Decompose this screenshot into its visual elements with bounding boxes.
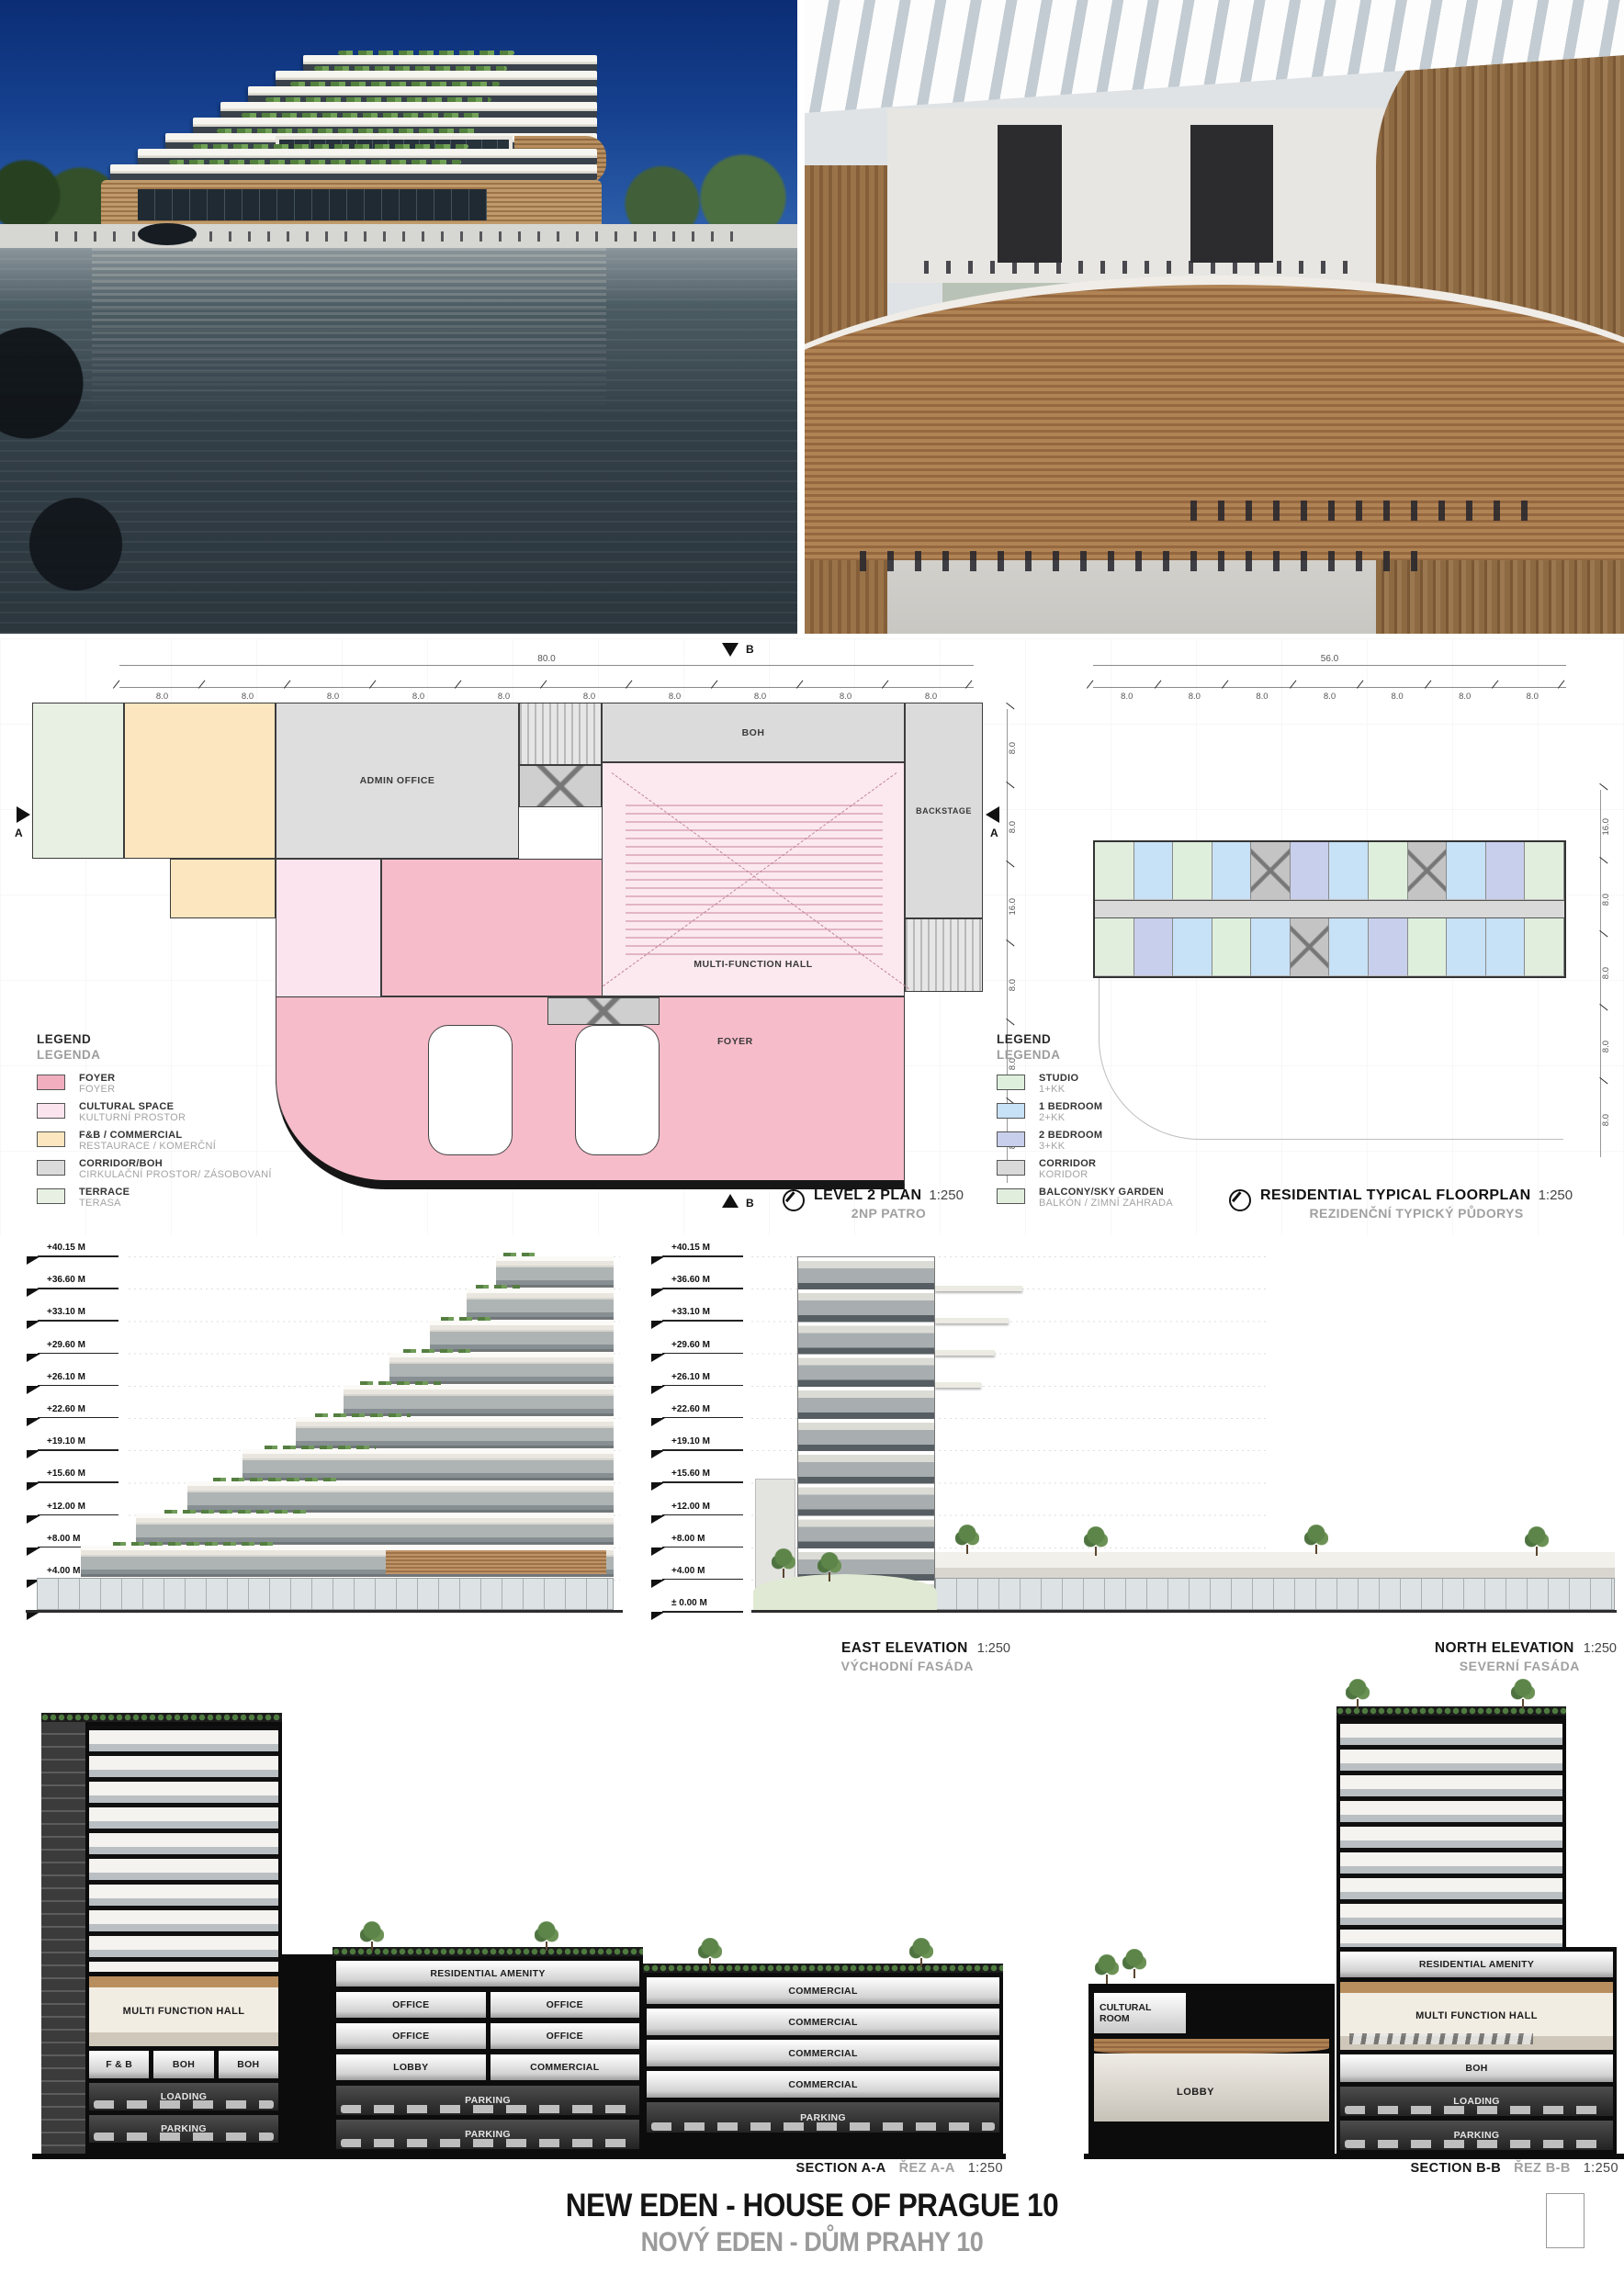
level-marker: +22.60 M [648, 1403, 758, 1435]
level2-legend: LEGEND LEGENDA FOYER FOYER CULTURAL SPAC… [37, 1032, 312, 1215]
foyer-core [428, 1025, 513, 1155]
elevation-scale: 1:250 [1584, 1641, 1617, 1656]
legend-title-cz: LEGENDA [37, 1048, 312, 1064]
dim-segment: 8.0 [1093, 688, 1161, 704]
section-room-cell: COMMERCIAL [647, 2009, 999, 2035]
section-marker-b-top [722, 643, 739, 657]
level-marker: +36.60 M [648, 1274, 758, 1306]
dim-value: 16.0 [1601, 818, 1611, 836]
legend-label-en: 1 BEDROOM [1039, 1101, 1272, 1112]
section-room-cell: RESIDENTIAL AMENITY [336, 1961, 639, 1986]
section-title-en: SECTION A-A [796, 2161, 886, 2176]
section-marker-letter: A [15, 827, 23, 839]
unit-cell [1134, 842, 1174, 900]
legend-item: TERRACE TERASA [37, 1187, 312, 1209]
section-a-core [282, 1954, 333, 2154]
dim-segment: 8.0 [1008, 709, 1018, 788]
section-room-cell: BOH [1340, 2054, 1613, 2082]
section-ground-bar [32, 2154, 1006, 2159]
level-marker: +29.60 M [23, 1339, 133, 1371]
board-title: NEW EDEN - HOUSE OF PRAGUE 10 NOVÝ EDEN … [0, 2188, 1624, 2258]
admin-office-room: ADMIN OFFICE [276, 703, 519, 859]
dim-segment: 8.0 [1498, 688, 1566, 704]
section-marker-a-right [986, 806, 999, 823]
legend-item: CULTURAL SPACE KULTURNÍ PROSTOR [37, 1101, 312, 1123]
section-marker-letter: B [746, 643, 754, 656]
section-room-cell: LOBBY [336, 2054, 486, 2080]
dim-value: 8.0 [1601, 967, 1611, 979]
section-room-label: LOBBY [1177, 2087, 1214, 2098]
atrium-people [860, 551, 1429, 571]
dim-side-column: 16.08.08.08.08.0 [1600, 790, 1611, 1157]
level-marker: +29.60 M [648, 1339, 758, 1371]
unit-cell [1369, 918, 1408, 976]
legend-swatch [37, 1160, 65, 1176]
multi-function-hall: MULTI-FUNCTION HALL [602, 762, 905, 996]
unit-cell [1212, 918, 1252, 976]
legend-title: LEGEND LEGENDA [997, 1032, 1272, 1064]
section-room-cell: F & B [89, 2051, 149, 2078]
atrium-people [1190, 501, 1539, 521]
residential-floors [89, 1726, 278, 1972]
level-value: +36.60 M [671, 1275, 710, 1285]
section-marker-letter: B [746, 1197, 754, 1210]
foreground-furniture [0, 276, 138, 634]
tree [1095, 1954, 1119, 1984]
section-scale: 1:250 [968, 2161, 1003, 2176]
room-label: MULTI-FUNCTION HALL [694, 959, 812, 970]
legend-label-cz: 2+KK [1039, 1112, 1272, 1123]
board-title-en: NEW EDEN - HOUSE OF PRAGUE 10 [81, 2188, 1542, 2224]
level-value: +26.10 M [671, 1372, 710, 1382]
legend-swatch [37, 1103, 65, 1119]
dim-value: 8.0 [1008, 979, 1018, 991]
hall-seating [626, 805, 883, 961]
dim-segment: 8.0 [1008, 946, 1018, 1025]
legend-label-cz: KORIDOR [1039, 1169, 1272, 1180]
level-marker: +19.10 M [648, 1435, 758, 1468]
plan-title-cz: 2NP PATRO [814, 1206, 964, 1221]
east-elevation-title: EAST ELEVATION1:250 VÝCHODNÍ FASÁDA [735, 1640, 1010, 1673]
elevation-slab [296, 1417, 614, 1447]
legend-swatch [997, 1160, 1025, 1176]
level-marker: +19.10 M [23, 1435, 133, 1468]
tree [1122, 1949, 1146, 1978]
level-value: +29.60 M [671, 1340, 710, 1350]
room-label: BOH [742, 727, 765, 738]
section-row: PARKING [647, 2102, 999, 2133]
foyer-room: FOYER [276, 996, 905, 1189]
level-value: +15.60 M [47, 1469, 85, 1479]
level-value: +40.15 M [47, 1243, 85, 1253]
roof-tree [1511, 1679, 1535, 1708]
elevator-core [547, 997, 660, 1025]
dim-value: 16.0 [1008, 898, 1018, 916]
north-arrow-icon [1229, 1189, 1251, 1211]
level-value: ± 0.00 M [671, 1598, 707, 1608]
section-row: PARKING [1340, 2121, 1613, 2150]
multi-function-hall-cell: MULTI FUNCTION HALL [89, 1976, 278, 2046]
level-marker: +8.00 M [648, 1533, 758, 1565]
section-row: OFFICEOFFICE [336, 1992, 639, 2018]
level-value: +26.10 M [47, 1372, 85, 1382]
gallery-art-wall [998, 125, 1062, 263]
level-marker: +4.00 M [648, 1565, 758, 1597]
wood-ceiling [1094, 2039, 1329, 2054]
unit-cell [1329, 918, 1369, 976]
fb-room [124, 703, 276, 859]
unit-cell [1329, 842, 1369, 900]
legend-swatch [37, 1075, 65, 1090]
legend-item: 1 BEDROOM 2+KK [997, 1101, 1272, 1123]
cantilever-slab [935, 1286, 1022, 1291]
landscape-berm [753, 1574, 937, 1610]
section-room-label: MULTI FUNCTION HALL [1415, 2010, 1538, 2021]
section-row: PARKING [336, 2120, 639, 2149]
plan-scale: 1:250 [929, 1187, 964, 1203]
north-level-markers: +40.15 M+36.60 M+33.10 M+29.60 M+26.10 M… [648, 1242, 758, 1629]
legend-label-en: 2 BEDROOM [1039, 1130, 1272, 1141]
legend-swatch [997, 1075, 1025, 1090]
section-b-right: RESIDENTIAL AMENITY MULTI FUNCTION HALL … [1336, 1947, 1617, 2154]
dim-total-80: 80.0 [119, 654, 974, 666]
section-room-label: MULTI FUNCTION HALL [123, 2006, 245, 2017]
level-value: +15.60 M [671, 1469, 710, 1479]
level-value: +40.15 M [671, 1243, 710, 1253]
roof-tree [360, 1921, 384, 1951]
level-value: +12.00 M [47, 1502, 85, 1512]
presentation-board: 80.0 8.08.08.08.08.08.08.08.08.08.0 8.08… [0, 0, 1624, 2296]
unit-cell [1251, 842, 1291, 900]
section-room-cell: OFFICE [491, 2023, 640, 2049]
dim-segment: 8.0 [1601, 1084, 1611, 1157]
elevation-slab [136, 1514, 614, 1544]
dim-segment: 8.0 [1228, 688, 1296, 704]
unit-cell [1212, 842, 1252, 900]
legend-title-en: LEGEND [37, 1032, 312, 1048]
section-row: BOH [1340, 2054, 1613, 2082]
legend-swatch [997, 1131, 1025, 1147]
section-title-cz: ŘEZ B-B [1514, 2161, 1571, 2176]
level-value: +19.10 M [671, 1436, 710, 1446]
legend-title-en: LEGEND [997, 1032, 1272, 1048]
section-row: PARKING [89, 2115, 278, 2143]
level-marker: +15.60 M [23, 1468, 133, 1500]
legend-label-cz: KULTURNÍ PROSTOR [79, 1112, 312, 1123]
dim-segment: 8.0 [1296, 688, 1364, 704]
section-b-left: CULTURAL ROOM LOBBY [1088, 1984, 1335, 2154]
legend-item: 2 BEDROOM 3+KK [997, 1130, 1272, 1152]
elevation-slab [430, 1321, 614, 1351]
dim-value: 8.0 [1008, 821, 1018, 833]
unit-cell [1291, 842, 1330, 900]
section-a-tower: MULTI FUNCTION HALL F & BBOHBOH LOADING … [41, 1722, 282, 2154]
section-room-cell: COMMERCIAL [647, 1977, 999, 2004]
legend-label-en: CULTURAL SPACE [79, 1101, 312, 1112]
cantilever-slab [935, 1318, 1009, 1323]
legend-label-cz: 3+KK [1039, 1141, 1272, 1152]
section-room-cell: RESIDENTIAL AMENITY [1340, 1952, 1613, 1977]
section-room-cell: PARKING [336, 2086, 639, 2115]
corridor-band [1095, 900, 1564, 918]
section-row: RESIDENTIAL AMENITY [336, 1961, 639, 1986]
section-marker-b-bottom [722, 1194, 739, 1208]
foyer-arm [381, 859, 602, 996]
level-value: +8.00 M [47, 1534, 80, 1544]
level-marker: +26.10 M [648, 1371, 758, 1403]
exterior-rendering-photo [0, 0, 797, 634]
residential-floors [1340, 1719, 1562, 1947]
level2-plan-title: LEVEL 2 PLAN1:250 2NP PATRO [783, 1187, 964, 1221]
plan-title-en: LEVEL 2 PLAN [814, 1187, 921, 1203]
cantilever-slab [935, 1382, 981, 1388]
section-row: COMMERCIAL [647, 2071, 999, 2098]
section-room-cell: LOADING [89, 2083, 278, 2110]
section-room-cell: COMMERCIAL [491, 2054, 640, 2080]
section-row: LOADING [89, 2083, 278, 2110]
roof-tree [535, 1921, 558, 1951]
north-elevation-title: NORTH ELEVATION1:250 SEVERNÍ FASÁDA [1341, 1640, 1617, 1673]
section-row: COMMERCIAL [647, 2009, 999, 2035]
room-label: ADMIN OFFICE [360, 775, 435, 786]
unit-cell [1408, 842, 1448, 900]
section-row: LOADING [1340, 2087, 1613, 2116]
cantilever-slab [935, 1350, 995, 1356]
unit-cell [1095, 918, 1134, 976]
roof-tree [698, 1938, 722, 1967]
unit-cell [1486, 918, 1526, 976]
section-row: OFFICEOFFICE [336, 2023, 639, 2049]
legend-label-en: F&B / COMMERCIAL [79, 1130, 312, 1141]
legend-label-cz: 1+KK [1039, 1084, 1272, 1095]
section-row: LOBBYCOMMERCIAL [336, 2054, 639, 2080]
level-value: +36.60 M [47, 1275, 85, 1285]
unit-cell [1173, 918, 1212, 976]
section-row: F & BBOHBOH [89, 2051, 278, 2078]
section-room-cell: PARKING [89, 2115, 278, 2143]
roof-tree [1346, 1679, 1370, 1708]
section-marker-a-left [17, 806, 30, 823]
board-title-cz: NOVÝ EDEN - DŮM PRAHY 10 [81, 2227, 1542, 2258]
backstage-room: BACKSTAGE [905, 703, 983, 918]
section-marker-letter: A [990, 827, 998, 839]
elevation-title-en: EAST ELEVATION [841, 1640, 968, 1656]
legend-label-cz: RESTAURACE / KOMERČNÍ [79, 1141, 312, 1152]
level-marker: +12.00 M [23, 1501, 133, 1533]
legend-title-cz: LEGENDA [997, 1048, 1272, 1064]
multi-function-hall-cell: MULTI FUNCTION HALL [1340, 1982, 1613, 2050]
plan-scale: 1:250 [1539, 1187, 1573, 1203]
elevation-slab [467, 1289, 614, 1319]
wing-glazing [935, 1578, 1615, 1610]
legend-label-en: STUDIO [1039, 1073, 1272, 1084]
section-row: COMMERCIAL [647, 2040, 999, 2066]
tree [818, 1552, 841, 1581]
boh-room: BOH [602, 703, 905, 762]
level-marker: +40.15 M [648, 1242, 758, 1274]
legend-label-en: CORRIDOR/BOH [79, 1158, 312, 1169]
unit-cell [1291, 918, 1330, 976]
legend-item: STUDIO 1+KK [997, 1073, 1272, 1095]
ground-floor-glazing [37, 1578, 614, 1610]
dim-segment: 8.0 [1161, 688, 1229, 704]
elevation-title-cz: SEVERNÍ FASÁDA [1341, 1659, 1580, 1673]
unit-cell [1408, 918, 1448, 976]
unit-cell [1251, 918, 1291, 976]
legend-label-en: FOYER [79, 1073, 312, 1084]
dim-segment: 8.0 [1008, 788, 1018, 867]
legend-items: FOYER FOYER CULTURAL SPACE KULTURNÍ PROS… [37, 1073, 312, 1209]
level-value: +33.10 M [47, 1307, 85, 1317]
dim-value: 8.0 [1601, 1041, 1611, 1052]
section-ground-bar [1084, 2154, 1624, 2159]
section-room-label: CULTURAL ROOM [1100, 2002, 1180, 2024]
plan-title-cz: REZIDENČNÍ TYPICKÝ PŮDORYS [1260, 1206, 1573, 1221]
dim-segments-row: 8.08.08.08.08.08.08.0 [1093, 687, 1566, 704]
legend-swatch [37, 1188, 65, 1204]
stair-core [519, 703, 602, 765]
dim-value: 8.0 [1008, 742, 1018, 754]
level-marker: +12.00 M [648, 1501, 758, 1533]
legend-title: LEGEND LEGENDA [37, 1032, 312, 1064]
building-terrace-slab [110, 164, 597, 180]
level-value: +22.60 M [671, 1404, 710, 1414]
unit-cell [1447, 918, 1486, 976]
unit-cell [1525, 842, 1564, 900]
section-room-cell: COMMERCIAL [647, 2071, 999, 2098]
dim-total-56: 56.0 [1093, 654, 1566, 666]
section-title-cz: ŘEZ A-A [899, 2161, 955, 2176]
elevation-slab [344, 1385, 614, 1415]
green-roof [643, 1964, 1003, 1973]
sculpture [138, 223, 197, 245]
fb-room-2 [170, 859, 276, 918]
level-value: +33.10 M [671, 1307, 710, 1317]
level-marker: +26.10 M [23, 1371, 133, 1403]
legend-swatch [37, 1131, 65, 1147]
raked-seating [1349, 2033, 1533, 2044]
roof-tree [909, 1938, 933, 1967]
dim-value: 8.0 [1601, 1114, 1611, 1126]
terrace-room [32, 703, 124, 859]
unit-cell [1173, 842, 1212, 900]
unit-cell [1525, 918, 1564, 976]
ground-line [751, 1610, 1617, 1613]
elevation-title-en: NORTH ELEVATION [1435, 1640, 1574, 1656]
elevation-slab [187, 1481, 614, 1512]
unit-cell [1095, 842, 1134, 900]
podium-glass [138, 189, 487, 220]
gallery-people [924, 261, 1365, 274]
legend-label-en: CORRIDOR [1039, 1158, 1272, 1169]
units-row-top [1095, 842, 1564, 900]
plan-title-en: RESIDENTIAL TYPICAL FLOORPLAN [1260, 1187, 1531, 1203]
level-marker: +33.10 M [648, 1306, 758, 1338]
legend-label-cz: CIRKULAČNÍ PROSTOR/ ZÁSOBOVANÍ [79, 1169, 312, 1180]
legend-label-cz: TERASA [79, 1198, 312, 1209]
dim-segment: 8.0 [1601, 937, 1611, 1010]
section-room-cell: PARKING [1340, 2121, 1613, 2150]
section-room-cell: OFFICE [336, 2023, 486, 2049]
legend-swatch [997, 1188, 1025, 1204]
level-value: +4.00 M [47, 1566, 80, 1576]
elevation-slab [496, 1256, 614, 1287]
section-room-cell: BOH [219, 2051, 278, 2078]
section-row: COMMERCIAL [647, 1977, 999, 2004]
ground-line [26, 1610, 623, 1613]
legend-label-cz: FOYER [79, 1084, 312, 1095]
foyer-core [575, 1025, 660, 1155]
legend-label-en: TERRACE [79, 1187, 312, 1198]
interior-atrium-photo [805, 0, 1624, 634]
dim-segment: 8.0 [1431, 688, 1499, 704]
level-marker: +22.60 M [23, 1403, 133, 1435]
dim-segment: 8.0 [1601, 1010, 1611, 1084]
upper-gallery [887, 108, 1402, 283]
elevation-title-cz: VÝCHODNÍ FASÁDA [735, 1659, 974, 1673]
stair-core [905, 918, 983, 992]
section-b-tower [1336, 1716, 1566, 1947]
section-row: RESIDENTIAL AMENITY [1340, 1952, 1613, 1977]
roof-tree [1304, 1525, 1328, 1554]
legend-item: F&B / COMMERCIAL RESTAURACE / KOMERČNÍ [37, 1130, 312, 1152]
elevation-slab [242, 1449, 614, 1480]
level-marker: ± 0.00 M [648, 1597, 758, 1629]
section-a-annex: COMMERCIAL COMMERCIAL COMMERCIAL COMMERC… [643, 1973, 1003, 2154]
section-room-cell: LOADING [1340, 2087, 1613, 2116]
room-label: FOYER [717, 1036, 753, 1047]
level-marker: +33.10 M [23, 1306, 133, 1338]
dim-segment: 8.0 [1601, 863, 1611, 937]
level-value: +12.00 M [671, 1502, 710, 1512]
level-value: +29.60 M [47, 1340, 85, 1350]
level-marker: +36.60 M [23, 1274, 133, 1306]
section-room-cell: PARKING [336, 2120, 639, 2149]
stair-shaft [41, 1722, 85, 2154]
level-value: +22.60 M [47, 1404, 85, 1414]
level-value: +19.10 M [47, 1436, 85, 1446]
section-a-label: SECTION A-AŘEZ A-A1:250 [636, 2161, 1003, 2176]
section-row: PARKING [336, 2086, 639, 2115]
stamp-box [1546, 2193, 1585, 2248]
elevation-scale: 1:250 [977, 1641, 1010, 1656]
level-marker: +15.60 M [648, 1468, 758, 1500]
cultural-room-cell: CULTURAL ROOM [1094, 1993, 1186, 2033]
green-roof [41, 1713, 282, 1722]
unit-cell [1486, 842, 1526, 900]
wood-louver-band [386, 1550, 606, 1574]
unit-cell [1369, 842, 1408, 900]
dim-segment: 16.0 [1601, 790, 1611, 863]
plan-title-text: LEVEL 2 PLAN1:250 2NP PATRO [814, 1187, 964, 1221]
section-room-cell: OFFICE [491, 1992, 640, 2018]
gallery-art-wall [1190, 125, 1273, 263]
unit-cell [1134, 918, 1174, 976]
section-title-en: SECTION B-B [1410, 2161, 1501, 2176]
legend-item: CORRIDOR KORIDOR [997, 1158, 1272, 1180]
dim-value: 8.0 [1601, 894, 1611, 906]
dim-segment: 16.0 [1008, 867, 1018, 946]
unit-cell [1447, 842, 1486, 900]
legend-swatch [997, 1103, 1025, 1119]
plan-title-text: RESIDENTIAL TYPICAL FLOORPLAN1:250 REZID… [1260, 1187, 1573, 1221]
legend-item: CORRIDOR/BOH CIRKULAČNÍ PROSTOR/ ZÁSOBOV… [37, 1158, 312, 1180]
section-room-cell: OFFICE [336, 1992, 486, 2018]
residential-floorplan-bar [1093, 840, 1566, 978]
roof-tree [1525, 1526, 1549, 1556]
elevation-slab [389, 1353, 614, 1383]
legend-item: FOYER FOYER [37, 1073, 312, 1095]
